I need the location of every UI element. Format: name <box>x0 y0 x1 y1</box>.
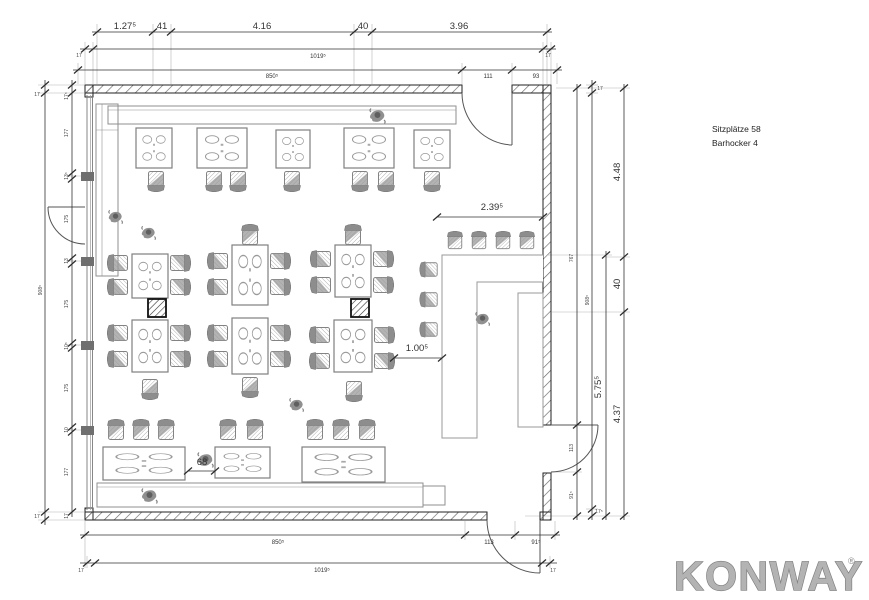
dim-label: 175 <box>64 300 70 309</box>
dim-label: 17 <box>545 53 551 59</box>
logo-text: KONWAY <box>674 553 864 599</box>
logo-registered-mark: ® <box>848 556 855 566</box>
dim-label: 17 <box>34 514 40 520</box>
dim-label: 175 <box>64 384 70 393</box>
seat-count-label: Sitzplätze 58 <box>712 124 761 134</box>
dim-label: 41 <box>157 21 168 32</box>
dim-label: 17 <box>76 53 82 59</box>
dim-label: 13⁵ <box>64 172 70 180</box>
dim-label: 908⁵ <box>585 295 591 305</box>
dim-label: 17 <box>550 568 556 574</box>
dim-label: 908⁵ <box>38 285 44 295</box>
dim-label: 1.27⁵ <box>114 21 136 32</box>
window-post <box>81 426 94 435</box>
dim-label: 175 <box>64 215 70 224</box>
dim-label: 4.37 <box>612 405 623 424</box>
dim-label: 13 <box>64 258 70 264</box>
dim-label: 113 <box>569 444 575 452</box>
dim-label: 111 <box>483 74 493 80</box>
dim-label: 40 <box>358 21 369 32</box>
dim-label: 4.48 <box>612 163 623 182</box>
window-post <box>81 172 94 181</box>
dim-label: 1019⁵ <box>314 567 330 574</box>
dim-label: 40 <box>612 279 623 290</box>
column <box>351 299 369 317</box>
dim-label: 17 <box>597 86 603 92</box>
window-post <box>81 341 94 350</box>
tables-bottom-row <box>103 447 385 482</box>
dim-label: 93 <box>533 74 540 80</box>
dim-label: 177 <box>64 468 70 477</box>
column <box>148 299 166 317</box>
dim-label: 4.16 <box>253 21 272 32</box>
barstool-count-label: Barhocker 4 <box>712 138 758 148</box>
dim-label: 10 <box>64 427 70 433</box>
dim-label: 177 <box>64 129 70 138</box>
floor-plan-drawing: 1.27⁵ 41 4.16 40 3.96 17 1019⁵ 17 850⁵ 1… <box>0 0 869 600</box>
dim-label: 17 <box>64 513 70 519</box>
logo: KONWAY ® <box>674 553 864 599</box>
dim-label: 91⁵ <box>531 539 541 546</box>
dim-label: 1.00⁵ <box>406 343 428 354</box>
dim-label: 5.75⁵ <box>593 376 604 398</box>
dim-label: 17⁵ <box>595 509 603 515</box>
dim-label: 113 <box>484 540 494 546</box>
dim-label: 850⁵ <box>266 73 279 80</box>
window-post <box>81 257 94 266</box>
dim-label: 17⁵ <box>64 92 70 100</box>
dim-label: 17 <box>78 568 84 574</box>
dim-label: 10⁵ <box>64 342 70 350</box>
dim-label: 68 <box>197 457 208 468</box>
dim-label: 767 <box>569 254 575 263</box>
dim-label: 17 <box>34 92 40 98</box>
dim-label: 3.96 <box>450 21 469 32</box>
dim-label: 850⁵ <box>272 539 285 546</box>
dim-label: 2.39⁵ <box>481 202 503 213</box>
dim-label: 91⁵ <box>569 491 575 499</box>
dim-label: 1019⁵ <box>310 53 326 60</box>
